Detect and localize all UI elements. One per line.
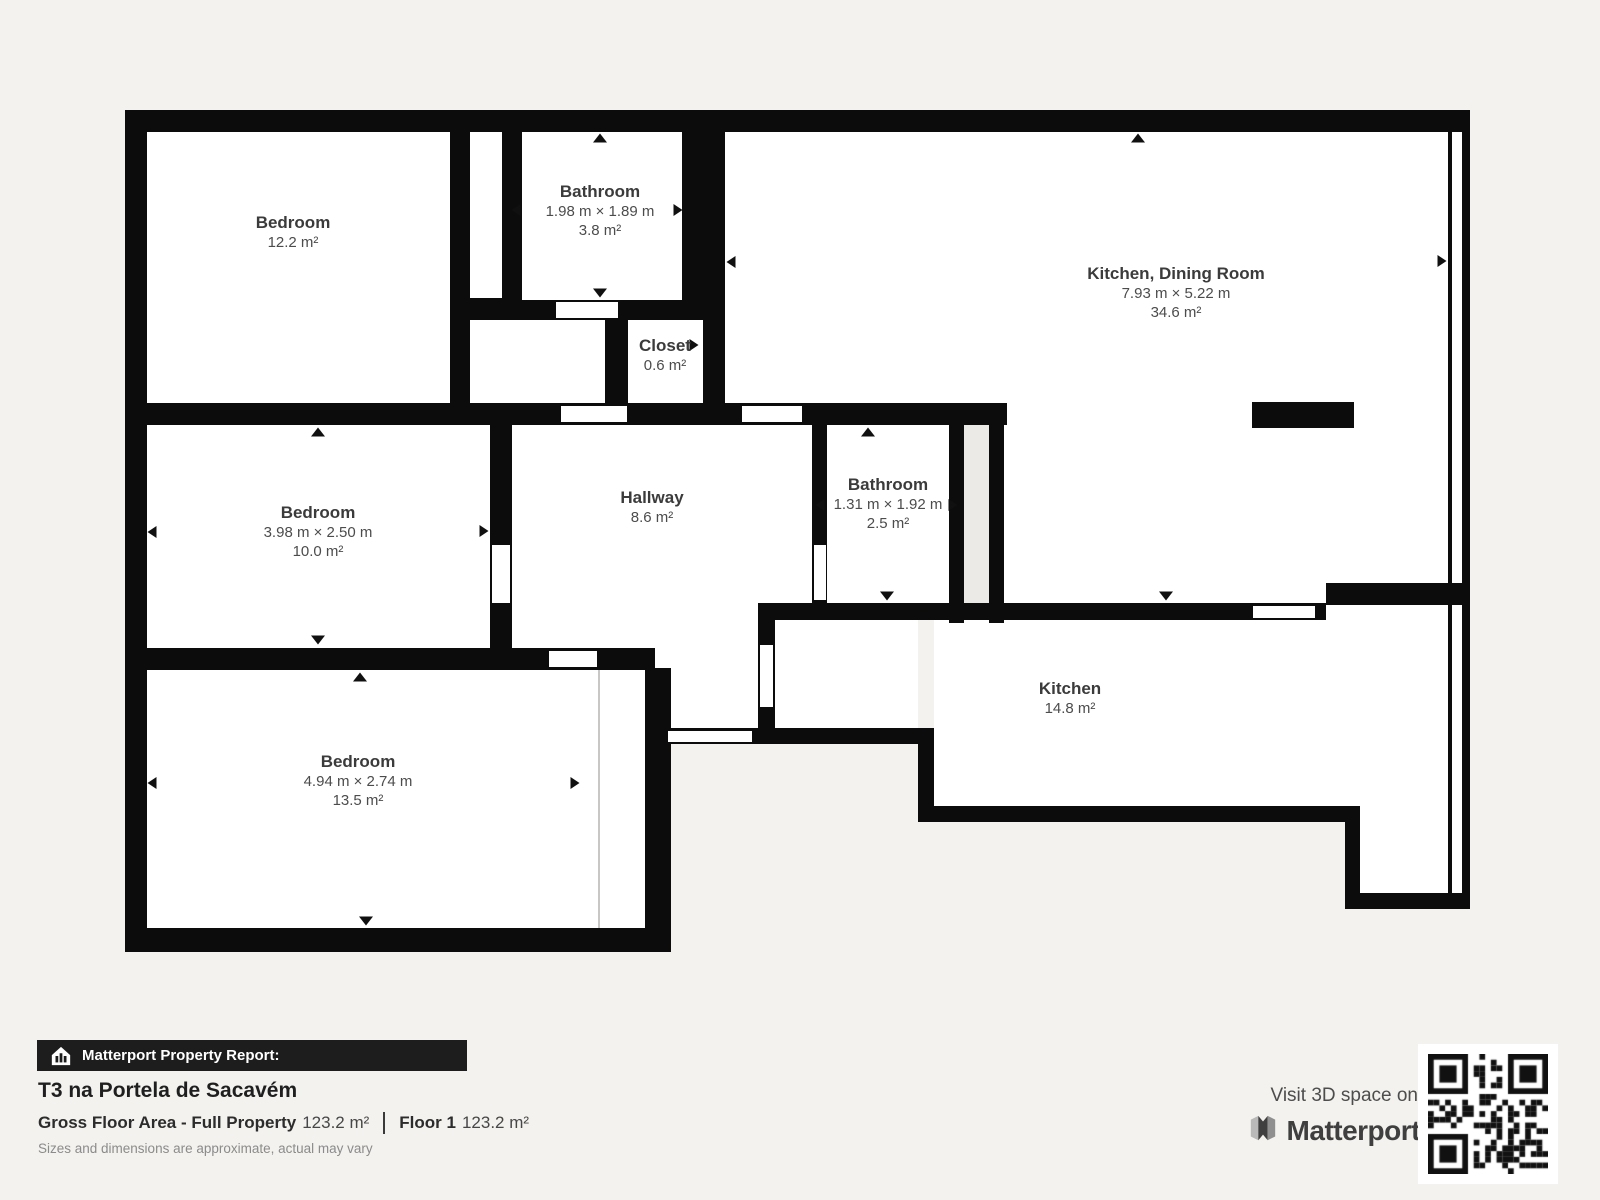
room-label-closet: Closet 0.6 m² bbox=[639, 336, 691, 375]
door-bedroom-3 bbox=[549, 651, 597, 667]
wall-right-outer bbox=[1462, 110, 1470, 909]
room-label-bathroom-1: Bathroom 1.98 m × 1.89 m 3.8 m² bbox=[546, 182, 655, 240]
room-area: 8.6 m² bbox=[620, 508, 683, 527]
door-lobby bbox=[561, 406, 627, 422]
window-line-upper bbox=[1448, 128, 1452, 583]
matterport-logo-icon bbox=[1248, 1113, 1278, 1148]
room-dimensions: 4.94 m × 2.74 m bbox=[304, 772, 413, 791]
room-floor-kitchen-dining-low bbox=[1004, 403, 1448, 603]
room-label-kitchen-dining-room: Kitchen, Dining Room 7.93 m × 5.22 m 34.… bbox=[1087, 264, 1265, 322]
dimension-arrow-right bbox=[674, 204, 683, 216]
room-area: 12.2 m² bbox=[256, 233, 331, 252]
wall-left bbox=[125, 110, 147, 952]
report-metrics: Gross Floor Area - Full Property 123.2 m… bbox=[38, 1112, 529, 1134]
door-bathroom-2 bbox=[814, 545, 826, 600]
dimension-arrow-up bbox=[593, 134, 607, 143]
closet-divider-line bbox=[598, 670, 600, 928]
wall-closet-left bbox=[605, 320, 628, 403]
wall-kitchen-top bbox=[758, 603, 1326, 620]
dimension-arrow-up bbox=[353, 673, 367, 682]
room-name: Bedroom bbox=[256, 213, 331, 233]
door-bedroom-2 bbox=[492, 545, 510, 603]
window-strip-lower bbox=[1452, 600, 1462, 893]
room-dimensions: 3.98 m × 2.50 m bbox=[264, 523, 373, 542]
dimension-arrow-down bbox=[311, 636, 325, 645]
room-label-bathroom-2: Bathroom 1.31 m × 1.92 m 2.5 m² bbox=[834, 475, 943, 533]
room-dimensions: 1.98 m × 1.89 m bbox=[546, 202, 655, 221]
room-area: 3.8 m² bbox=[546, 221, 655, 240]
room-floor-kitchen-a bbox=[775, 620, 918, 728]
room-name: Bedroom bbox=[304, 752, 413, 772]
room-area: 34.6 m² bbox=[1087, 303, 1265, 322]
room-name: Kitchen bbox=[1039, 679, 1101, 699]
floor-plan: Bedroom 12.2 m² Bathroom 1.98 m × 1.89 m… bbox=[0, 0, 1600, 1200]
floor-label: Floor 1 bbox=[399, 1113, 456, 1133]
room-label-bedroom-2: Bedroom 3.98 m × 2.50 m 10.0 m² bbox=[264, 503, 373, 561]
kitchen-counter bbox=[1252, 402, 1354, 428]
wall-bedroom1-right bbox=[450, 110, 470, 403]
door-hallway-kitchen-dining bbox=[742, 406, 802, 422]
dimension-arrow-left bbox=[148, 526, 157, 538]
door-entrance bbox=[668, 731, 752, 742]
room-label-hallway: Hallway 8.6 m² bbox=[620, 488, 683, 527]
room-floor-niche bbox=[470, 132, 502, 298]
dimension-arrow-left bbox=[727, 256, 736, 268]
gross-floor-area-value: 123.2 m² bbox=[302, 1113, 369, 1133]
report-header-bar: Matterport Property Report: bbox=[37, 1040, 467, 1071]
dimension-arrow-right bbox=[1438, 255, 1447, 267]
gross-floor-area-label: Gross Floor Area - Full Property bbox=[38, 1113, 296, 1133]
dimension-arrow-left bbox=[816, 499, 825, 511]
shaft bbox=[964, 425, 989, 603]
dimension-arrow-right bbox=[480, 525, 489, 537]
room-label-bedroom-3: Bedroom 4.94 m × 2.74 m 13.5 m² bbox=[304, 752, 413, 810]
room-area: 10.0 m² bbox=[264, 542, 373, 561]
visit-text: Visit 3D space on bbox=[1248, 1085, 1418, 1107]
room-name: Bathroom bbox=[546, 182, 655, 202]
dimension-arrow-up bbox=[861, 428, 875, 437]
door-bathroom-1 bbox=[556, 302, 618, 318]
room-area: 14.8 m² bbox=[1039, 699, 1101, 718]
wall-kitchen-dining-left bbox=[703, 110, 725, 425]
wall-bathroom2-right bbox=[949, 403, 964, 623]
room-floor-lobby bbox=[470, 320, 605, 403]
window-line-lower bbox=[1448, 605, 1452, 893]
dimension-arrow-right bbox=[571, 777, 580, 789]
wall-niche-bottom bbox=[450, 298, 522, 320]
room-name: Hallway bbox=[620, 488, 683, 508]
disclaimer-text: Sizes and dimensions are approximate, ac… bbox=[38, 1141, 373, 1156]
matterport-wordmark: Matterport bbox=[1287, 1115, 1420, 1147]
dimension-arrow-right bbox=[949, 499, 958, 511]
wall-column-bottom bbox=[1345, 893, 1470, 909]
room-name: Bathroom bbox=[834, 475, 943, 495]
house-chart-icon bbox=[50, 1045, 72, 1067]
room-dimensions: 7.93 m × 5.22 m bbox=[1087, 284, 1265, 303]
room-label-bedroom-1: Bedroom 12.2 m² bbox=[256, 213, 331, 252]
visit-3d-block: Visit 3D space on Matterport bbox=[1248, 1085, 1420, 1148]
room-label-kitchen: Kitchen 14.8 m² bbox=[1039, 679, 1101, 718]
dimension-arrow-down bbox=[880, 592, 894, 601]
property-title: T3 na Portela de Sacavém bbox=[38, 1079, 297, 1103]
wall-kitchen-bottom bbox=[918, 806, 1360, 822]
dimension-arrow-down bbox=[593, 289, 607, 298]
room-floor-kitchen-column bbox=[1360, 605, 1448, 893]
room-floor-hallway-b bbox=[512, 603, 758, 648]
room-area: 13.5 m² bbox=[304, 791, 413, 810]
dimension-arrow-down bbox=[1159, 592, 1173, 601]
room-name: Closet bbox=[639, 336, 691, 356]
floor-value: 123.2 m² bbox=[462, 1113, 529, 1133]
room-area: 2.5 m² bbox=[834, 514, 943, 533]
wall-shaft-right bbox=[989, 403, 1004, 623]
room-name: Bedroom bbox=[264, 503, 373, 523]
window-kitchen-left bbox=[760, 645, 773, 707]
wall-bedroom3-right bbox=[645, 668, 671, 952]
dimension-arrow-down bbox=[359, 917, 373, 926]
room-dimensions: 1.31 m × 1.92 m bbox=[834, 495, 943, 514]
room-name: Kitchen, Dining Room bbox=[1087, 264, 1265, 284]
wall-column-left bbox=[1345, 820, 1360, 895]
room-floor-bedroom-1 bbox=[147, 132, 450, 403]
divider bbox=[383, 1112, 385, 1134]
room-floor-kitchen-b bbox=[934, 620, 1348, 806]
room-area: 0.6 m² bbox=[639, 356, 691, 375]
door-kitchen bbox=[1253, 606, 1315, 618]
window-strip-upper bbox=[1452, 125, 1462, 583]
wall-bedroom2-right bbox=[490, 425, 512, 648]
dimension-arrow-up bbox=[1131, 134, 1145, 143]
wall-bedroom3-bottom bbox=[125, 928, 671, 952]
wall-top bbox=[125, 110, 1470, 132]
dimension-arrow-left bbox=[148, 777, 157, 789]
qr-code bbox=[1418, 1044, 1558, 1184]
wall-bathroom1-right bbox=[682, 110, 703, 320]
dimension-arrow-up bbox=[311, 428, 325, 437]
dimension-arrow-left bbox=[512, 204, 521, 216]
report-bar-label: Matterport Property Report: bbox=[82, 1047, 280, 1064]
wall-kitchen-top-right bbox=[1326, 583, 1470, 605]
